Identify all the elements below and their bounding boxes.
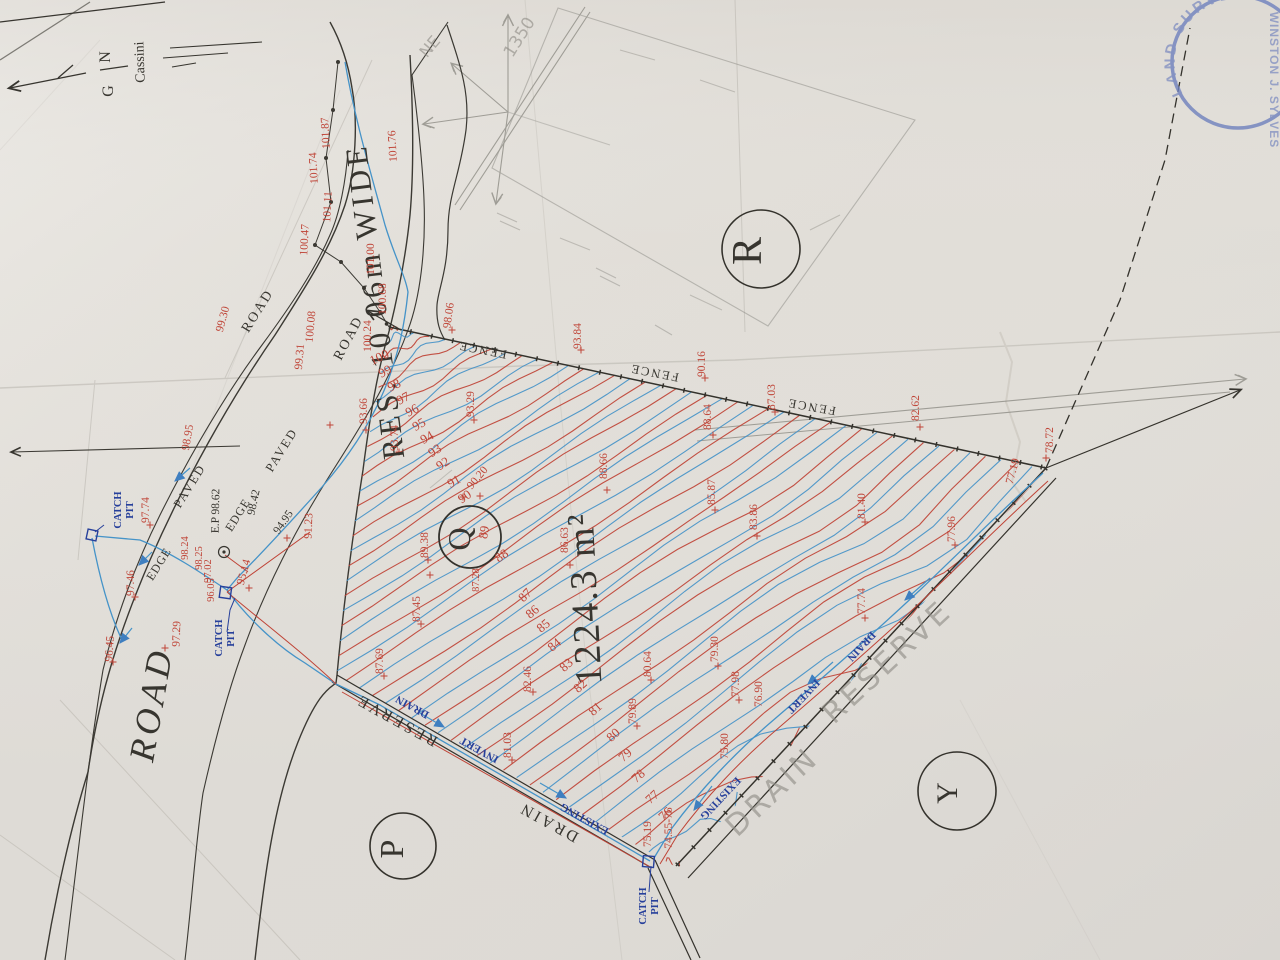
spot-elev: 77.96	[946, 516, 958, 542]
parcel-p: P	[374, 840, 411, 859]
spot-elev: 90.16	[696, 351, 708, 377]
parcel-y: Y	[931, 782, 964, 804]
catch-pit-label: CATCH	[113, 491, 124, 528]
spot-elev: 98.24	[180, 535, 191, 559]
catch-pit-label: PIT	[226, 629, 237, 647]
spot-elev: 101.76	[386, 130, 400, 162]
spot-elev: 96.45	[103, 635, 117, 662]
spot-elev: 87.45	[411, 596, 423, 622]
spot-elev: 75.19	[642, 821, 654, 847]
spot-elev: 100.68	[377, 283, 389, 315]
spot-elev: 77.98	[730, 671, 742, 697]
spot-elev: 83.86	[748, 504, 760, 530]
spot-elev: 93.29	[465, 391, 477, 417]
catch-pit-label: CATCH	[638, 887, 649, 924]
spot-elev: 85.87	[706, 479, 718, 505]
spot-elev: 101.87	[319, 117, 333, 149]
spot-elev: 81.40	[856, 493, 868, 519]
spot-elev: 80.64	[642, 651, 654, 677]
parcel-q: Q	[441, 527, 477, 550]
spot-elev: 101.00	[365, 243, 377, 275]
spot-elev: 78.72	[1044, 427, 1056, 453]
spot-elev: 101.74	[307, 152, 321, 184]
catch-pit-label: PIT	[650, 897, 661, 915]
spot-elev: 100.47	[298, 223, 312, 255]
spot-elev: 86.63	[559, 527, 571, 553]
spot-elev: 87.69	[374, 648, 386, 674]
spot-elev: 101.11	[321, 191, 335, 223]
spot-elev: 82.46	[522, 666, 534, 692]
spot-elev: 99.31	[293, 343, 307, 370]
spot-elev: 97.29	[171, 621, 184, 648]
spot-elev: 82.62	[910, 395, 922, 421]
stamp-name-text: WINSTON J. SYLVES	[1267, 12, 1280, 149]
spot-elev: 79.89	[627, 698, 639, 724]
contour-label: 89	[475, 525, 492, 540]
survey-plan-photo: NGCassiniROADRES. 10.06m WIDEROADROADPAV…	[0, 0, 1280, 960]
north-letter-g: G	[100, 85, 117, 97]
spot-elev: 89.38	[419, 532, 431, 558]
spot-elev: 97.46	[125, 570, 137, 596]
parcel-r: R	[725, 237, 771, 265]
spot-elev: 81.03	[502, 732, 514, 758]
catch-pit-label: PIT	[125, 501, 136, 519]
spot-elev: 97.74	[140, 497, 152, 523]
north-letter-n: N	[97, 51, 114, 63]
spot-elev: 87.28	[471, 568, 482, 592]
spot-elev: 75.80	[719, 733, 731, 759]
spot-elev: 77.74	[856, 588, 868, 614]
survey-plan-canvas: NGCassiniROADRES. 10.06m WIDEROADROADPAV…	[0, 0, 1280, 960]
spot-elev: 87.03	[766, 384, 778, 410]
north-datum: Cassini	[132, 41, 148, 83]
spot-elev: 96.05	[206, 578, 217, 602]
spot-elev: 88.66	[598, 453, 610, 479]
spot-elev: 88.64	[702, 404, 714, 430]
spot-elev: 79.30	[709, 636, 721, 662]
spot-elev: 93.84	[572, 323, 584, 349]
spot-elev: 76.90	[753, 681, 765, 707]
catch-pit-label: CATCH	[214, 619, 225, 656]
electric-pole-label: E.P 98.62	[210, 488, 223, 533]
spot-elev: 93.74	[389, 425, 401, 451]
spot-elev: 91.23	[303, 513, 316, 540]
spot-elev: 100.24	[362, 320, 374, 352]
spot-elev: 93.66	[358, 398, 370, 424]
